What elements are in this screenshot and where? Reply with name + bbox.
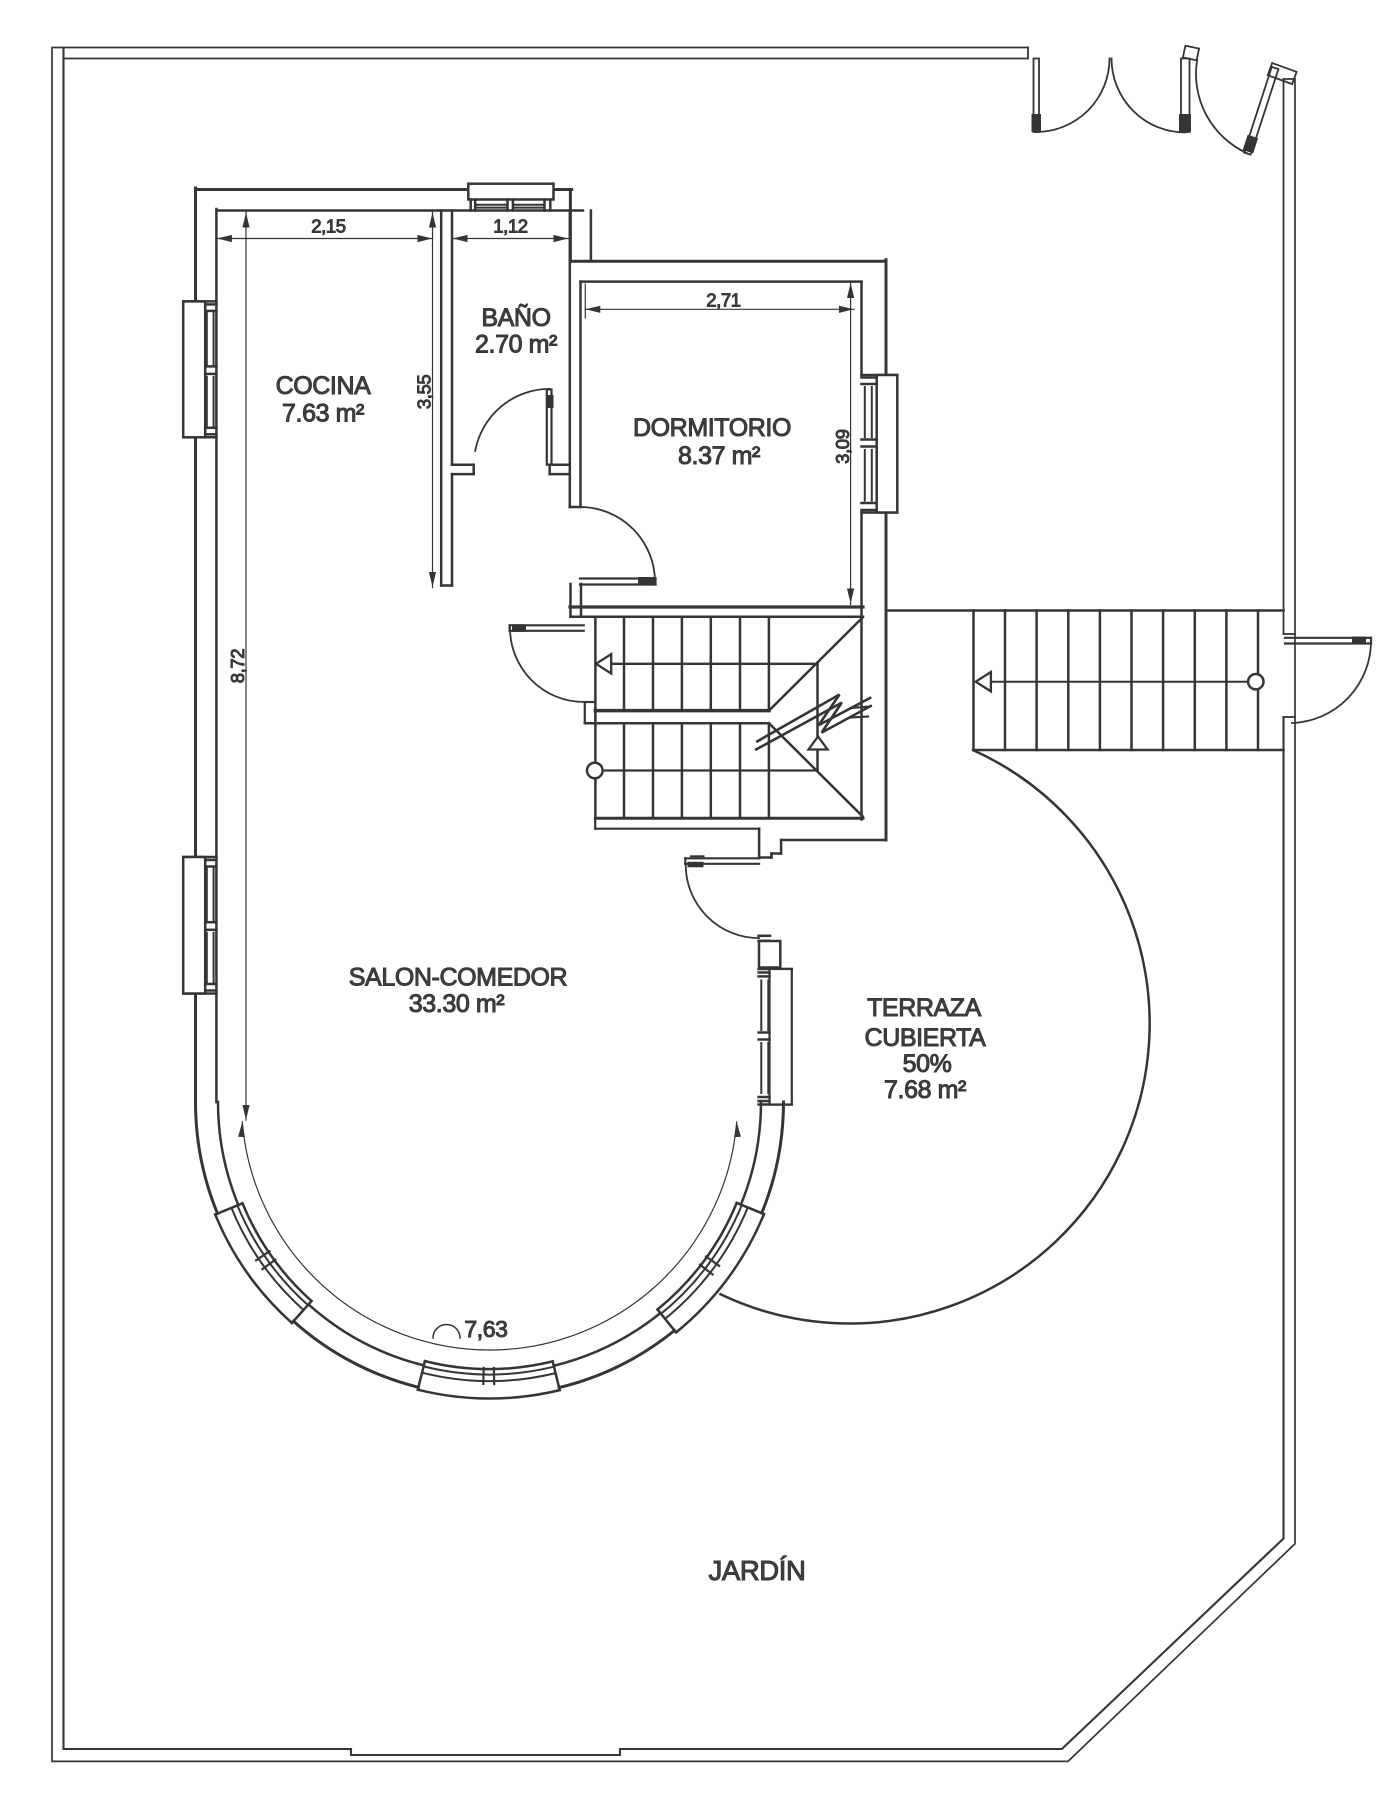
svg-text:50%: 50% [903, 1050, 952, 1078]
svg-text:SALON-COMEDOR: SALON-COMEDOR [349, 964, 567, 992]
svg-text:7.63 m²: 7.63 m² [282, 400, 364, 428]
svg-text:8,72: 8,72 [227, 649, 248, 684]
svg-text:TERRAZA: TERRAZA [867, 994, 982, 1022]
svg-text:JARDÍN: JARDÍN [709, 1555, 806, 1586]
svg-text:2,15: 2,15 [311, 216, 346, 237]
svg-text:3,09: 3,09 [832, 429, 853, 464]
svg-text:COCINA: COCINA [276, 372, 372, 400]
svg-text:1,12: 1,12 [493, 216, 528, 237]
svg-text:DORMITORIO: DORMITORIO [633, 414, 791, 442]
svg-text:8.37 m²: 8.37 m² [678, 442, 760, 470]
svg-text:3,55: 3,55 [414, 375, 435, 410]
svg-text:2,71: 2,71 [706, 290, 741, 311]
svg-text:7,63: 7,63 [464, 1316, 507, 1342]
svg-text:33.30 m²: 33.30 m² [409, 990, 505, 1018]
svg-text:CUBIERTA: CUBIERTA [865, 1024, 987, 1052]
svg-text:BAÑO: BAÑO [481, 303, 550, 332]
svg-text:2.70 m²: 2.70 m² [475, 331, 557, 359]
svg-text:7.68 m²: 7.68 m² [884, 1076, 966, 1104]
